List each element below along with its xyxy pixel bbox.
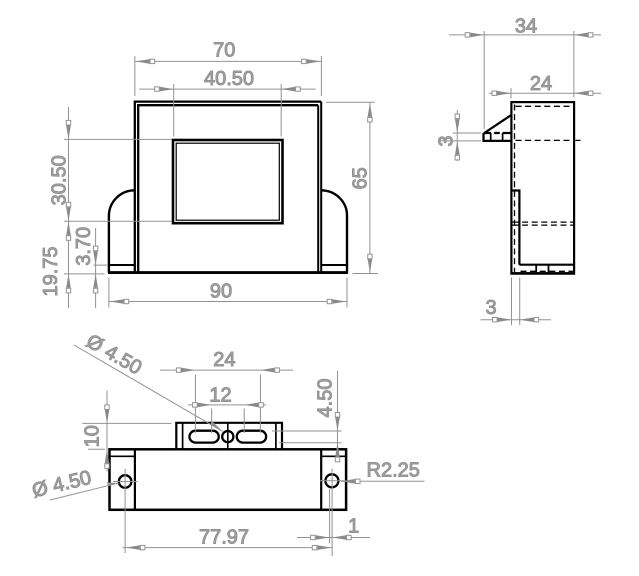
svg-text:30.50: 30.50 [48, 155, 70, 205]
svg-text:24: 24 [530, 73, 552, 95]
svg-text:77.97: 77.97 [199, 527, 249, 549]
svg-text:34: 34 [515, 15, 537, 37]
svg-text:24: 24 [213, 349, 235, 371]
svg-text:3: 3 [436, 135, 458, 146]
svg-text:R2.25: R2.25 [367, 460, 420, 482]
svg-text:12: 12 [209, 384, 231, 406]
svg-text:10: 10 [82, 425, 104, 447]
svg-text:1: 1 [348, 516, 359, 538]
svg-text:4.50: 4.50 [315, 379, 337, 418]
svg-text:90: 90 [210, 281, 232, 303]
svg-text:70: 70 [213, 40, 235, 62]
svg-text:19.75: 19.75 [40, 246, 62, 296]
svg-text:3.70: 3.70 [73, 227, 95, 266]
svg-text:3: 3 [485, 297, 496, 319]
svg-text:40.50: 40.50 [204, 68, 254, 90]
svg-text:65: 65 [349, 167, 371, 189]
